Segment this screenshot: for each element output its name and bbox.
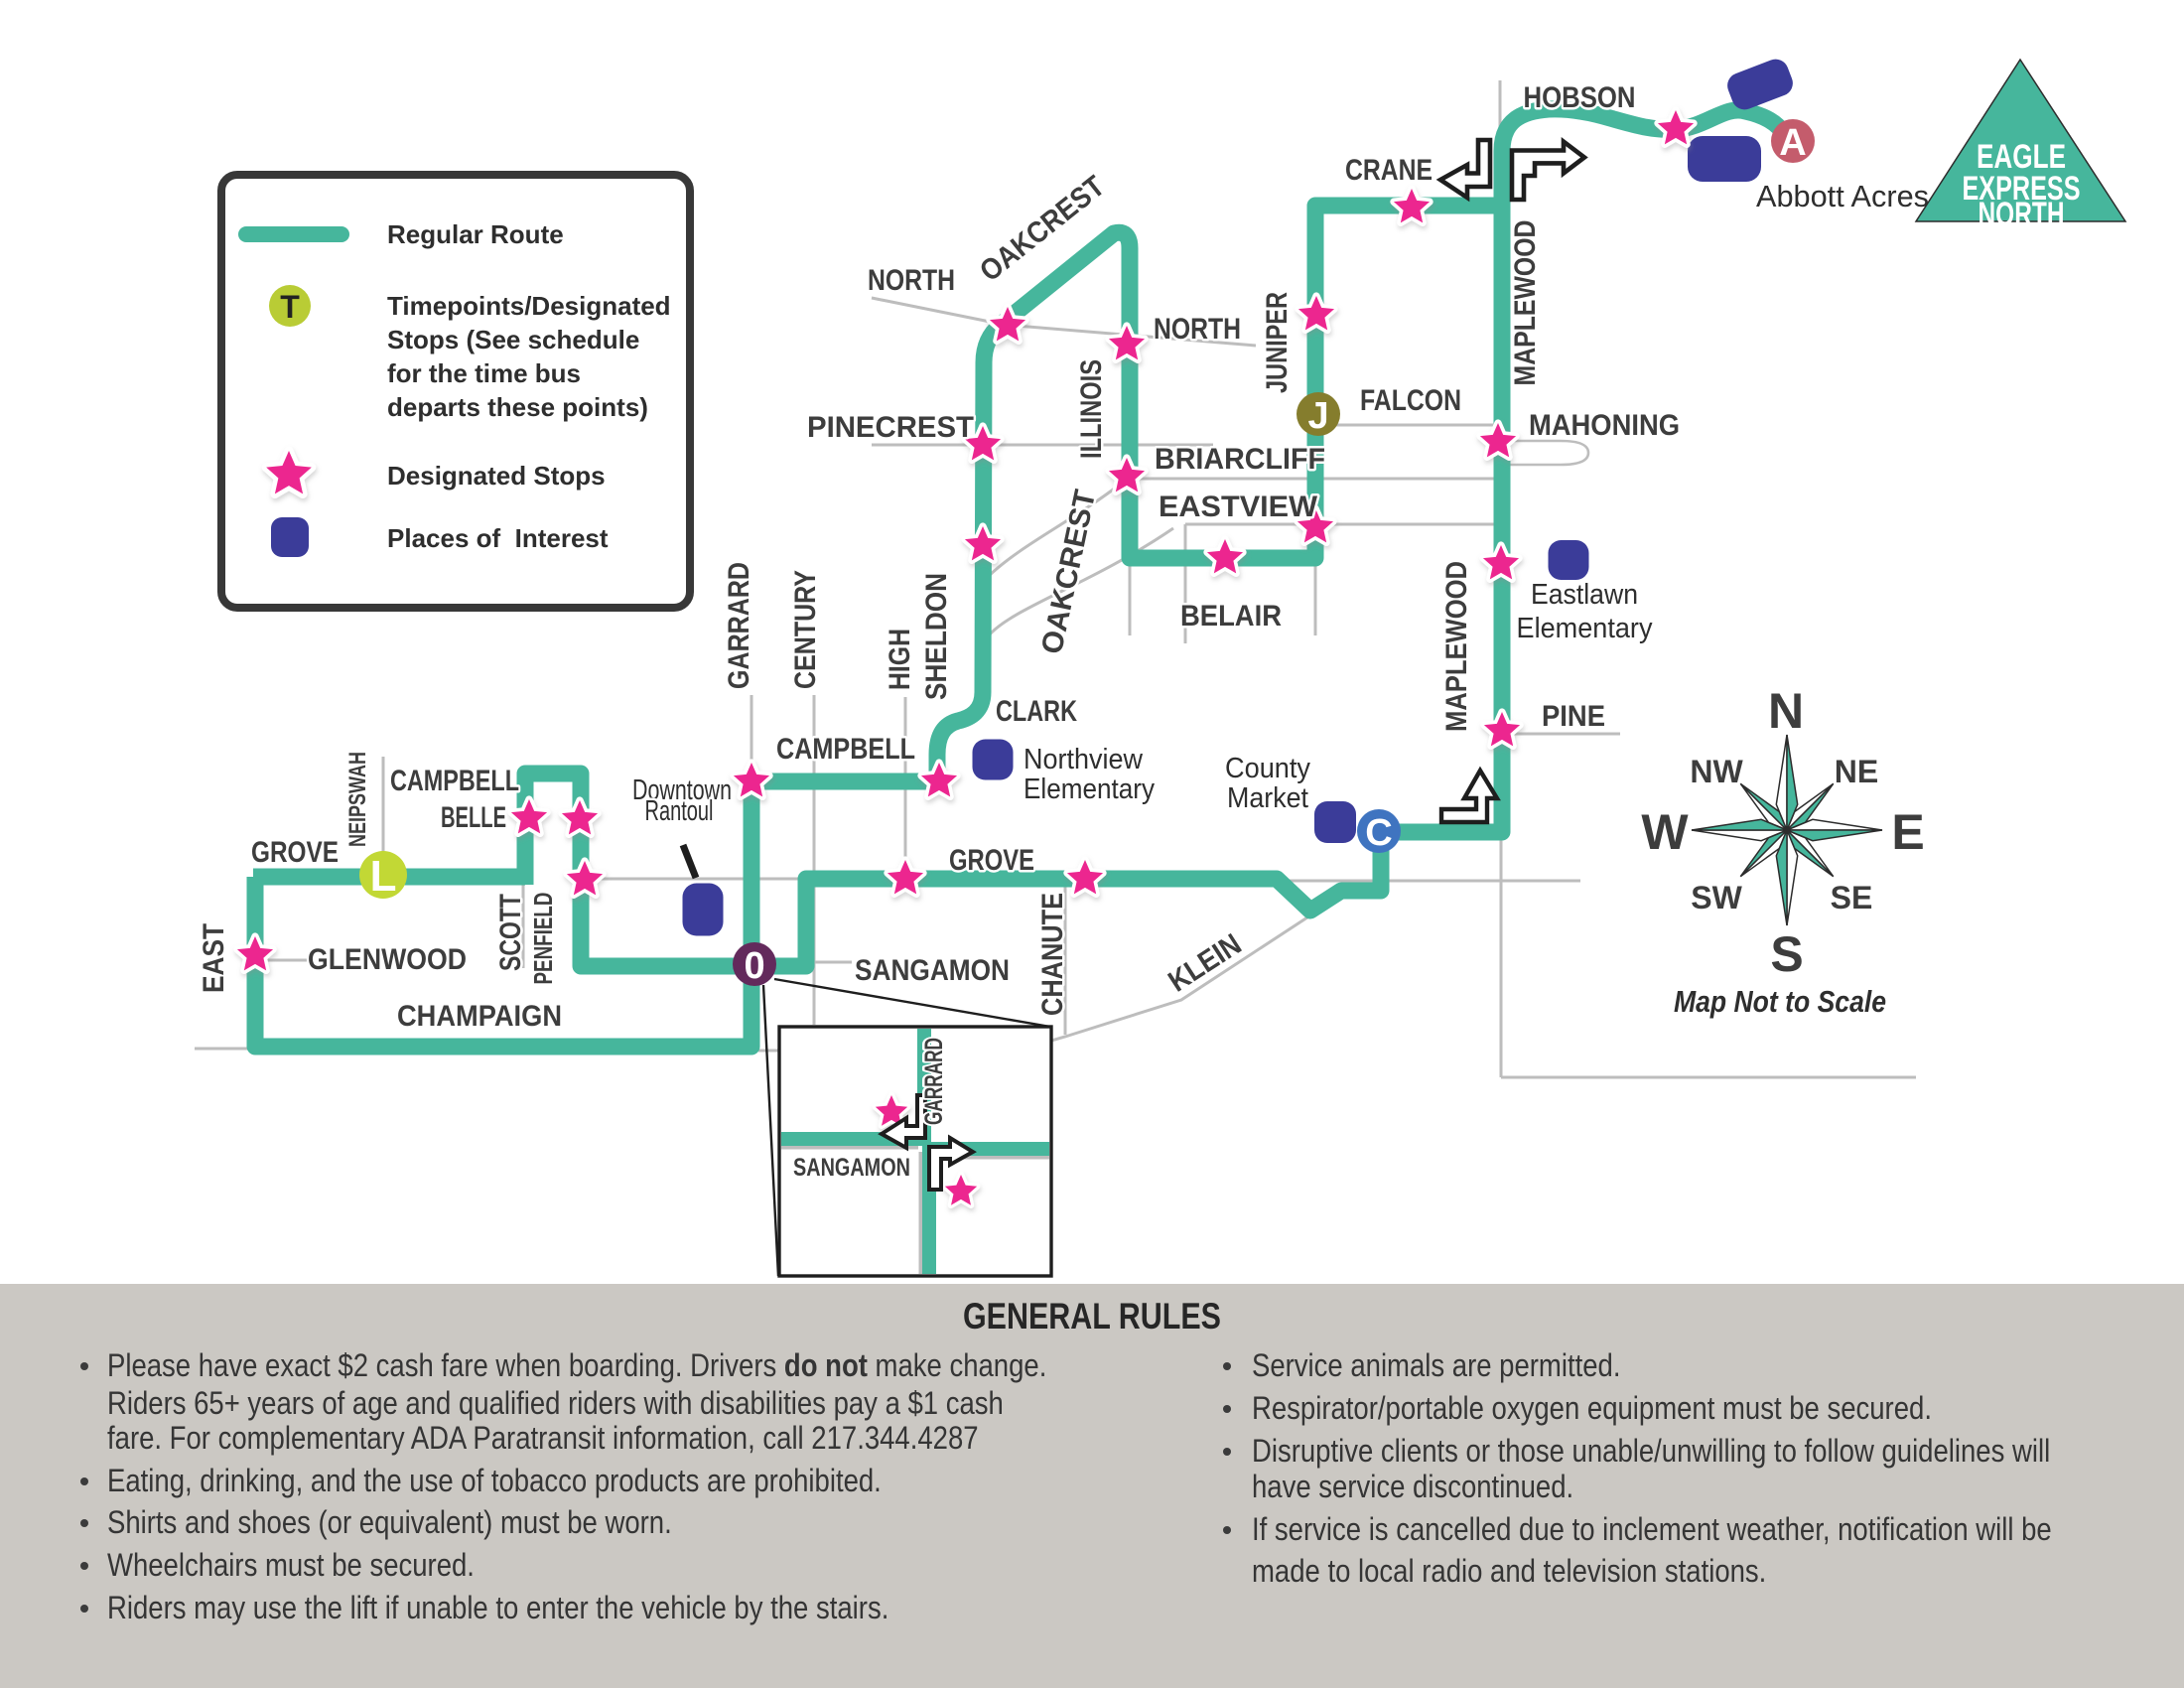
- svg-text:Timepoints/Designated: Timepoints/Designated: [387, 291, 671, 321]
- svg-text:made to local radio and televi: made to local radio and television stati…: [1252, 1554, 1766, 1589]
- svg-text:NORTH: NORTH: [868, 264, 955, 297]
- svg-text:Northview: Northview: [1024, 744, 1144, 775]
- svg-text:E: E: [1891, 804, 1924, 860]
- svg-text:County: County: [1225, 753, 1310, 784]
- svg-text:BRIARCLIFF: BRIARCLIFF: [1155, 443, 1325, 476]
- svg-text:BELAIR: BELAIR: [1180, 600, 1282, 633]
- svg-text:Shirts and shoes (or equivalen: Shirts and shoes (or equivalent) must be…: [107, 1505, 672, 1540]
- svg-text:L: L: [370, 852, 397, 901]
- svg-text:have service discontinued.: have service discontinued.: [1252, 1470, 1573, 1504]
- svg-text:Please have exact $2 cash fare: Please have exact $2 cash fare when boar…: [107, 1348, 1046, 1383]
- svg-text:MAPLEWOOD: MAPLEWOOD: [1509, 220, 1542, 386]
- svg-text:Wheelchairs must be secured.: Wheelchairs must be secured.: [107, 1548, 475, 1583]
- svg-text:S: S: [1770, 926, 1803, 982]
- svg-text:Service animals are permitted.: Service animals are permitted.: [1252, 1348, 1620, 1383]
- svg-text:Designated Stops: Designated Stops: [387, 461, 606, 491]
- svg-text:SANGAMON: SANGAMON: [793, 1154, 910, 1182]
- svg-text:GARRARD: GARRARD: [920, 1038, 948, 1125]
- svg-text:EAST: EAST: [198, 923, 230, 993]
- svg-text:Map Not to Scale: Map Not to Scale: [1674, 984, 1886, 1019]
- svg-text:MAHONING: MAHONING: [1529, 409, 1680, 442]
- svg-text:EASTVIEW: EASTVIEW: [1159, 491, 1318, 523]
- svg-text:PINE: PINE: [1542, 700, 1605, 733]
- svg-text:Stops (See schedule: Stops (See schedule: [387, 325, 639, 354]
- svg-text:NW: NW: [1690, 754, 1743, 789]
- svg-text:departs these points): departs these points): [387, 392, 648, 422]
- svg-text:CHAMPAIGN: CHAMPAIGN: [397, 1000, 562, 1033]
- svg-text:Market: Market: [1227, 782, 1308, 814]
- svg-text:Eating, drinking, and the use: Eating, drinking, and the use of tobacco…: [107, 1464, 882, 1498]
- svg-text:Regular Route: Regular Route: [387, 219, 564, 249]
- svg-text:If service is cancelled due to: If service is cancelled due to inclement…: [1252, 1512, 2052, 1547]
- svg-text:Riders may use the lift if una: Riders may use the lift if unable to ent…: [107, 1591, 888, 1625]
- svg-text:fare. For complementary ADA Pa: fare. For complementary ADA Paratransit …: [107, 1421, 979, 1456]
- svg-text:C: C: [1365, 812, 1392, 854]
- svg-text:SW: SW: [1691, 880, 1742, 915]
- svg-text:GENERAL RULES: GENERAL RULES: [963, 1296, 1221, 1336]
- svg-text:NORTH: NORTH: [1979, 196, 2065, 233]
- svg-text:Rantoul: Rantoul: [645, 795, 714, 827]
- svg-text:CHANUTE: CHANUTE: [1036, 893, 1069, 1016]
- svg-text:T: T: [280, 289, 300, 325]
- svg-text:Places of Interest: Places of Interest: [387, 523, 609, 553]
- svg-text:Eastlawn: Eastlawn: [1531, 579, 1638, 611]
- svg-text:A: A: [1779, 122, 1806, 164]
- svg-text:SCOTT: SCOTT: [494, 894, 527, 971]
- svg-text:CRANE: CRANE: [1345, 154, 1433, 187]
- svg-text:CAMPBELL: CAMPBELL: [776, 733, 915, 766]
- svg-text:FALCON: FALCON: [1360, 384, 1461, 417]
- svg-text:GROVE: GROVE: [251, 836, 339, 869]
- svg-text:Elementary: Elementary: [1517, 613, 1653, 644]
- svg-text:W: W: [1641, 804, 1689, 860]
- svg-text:ILLINOIS: ILLINOIS: [1075, 359, 1108, 459]
- svg-text:GARRARD: GARRARD: [723, 562, 755, 689]
- svg-text:CENTURY: CENTURY: [789, 570, 822, 689]
- svg-text:MAPLEWOOD: MAPLEWOOD: [1440, 561, 1473, 732]
- svg-text:SANGAMON: SANGAMON: [855, 954, 1010, 987]
- svg-text:Disruptive clients or those un: Disruptive clients or those unable/unwil…: [1252, 1434, 2050, 1469]
- svg-text:HOBSON: HOBSON: [1524, 81, 1636, 114]
- svg-text:JUNIPER: JUNIPER: [1261, 292, 1294, 393]
- svg-text:CLARK: CLARK: [996, 695, 1077, 728]
- svg-text:N: N: [1768, 683, 1804, 739]
- svg-text:NEIPSWAH: NEIPSWAH: [344, 752, 371, 847]
- svg-text:NORTH: NORTH: [1154, 313, 1241, 346]
- svg-text:NE: NE: [1835, 754, 1878, 789]
- svg-text:GROVE: GROVE: [949, 844, 1034, 877]
- svg-text:SE: SE: [1831, 880, 1873, 915]
- svg-text:SHELDON: SHELDON: [920, 573, 953, 700]
- svg-text:Abbott Acres: Abbott Acres: [1756, 179, 1929, 213]
- svg-text:Elementary: Elementary: [1024, 774, 1155, 805]
- svg-text:PENFIELD: PENFIELD: [528, 893, 558, 985]
- svg-text:Riders 65+ years of age and qu: Riders 65+ years of age and qualified ri…: [107, 1386, 1004, 1421]
- svg-text:HIGH: HIGH: [884, 629, 916, 690]
- svg-text:PINECREST: PINECREST: [807, 411, 974, 444]
- svg-text:J: J: [1307, 395, 1328, 437]
- svg-text:BELLE: BELLE: [441, 801, 506, 834]
- svg-text:GLENWOOD: GLENWOOD: [308, 943, 467, 976]
- svg-text:0: 0: [744, 945, 764, 987]
- svg-text:CAMPBELL: CAMPBELL: [390, 765, 519, 797]
- svg-text:Respirator/portable oxygen equ: Respirator/portable oxygen equipment mus…: [1252, 1391, 1932, 1426]
- svg-text:for the time bus: for the time bus: [387, 358, 581, 388]
